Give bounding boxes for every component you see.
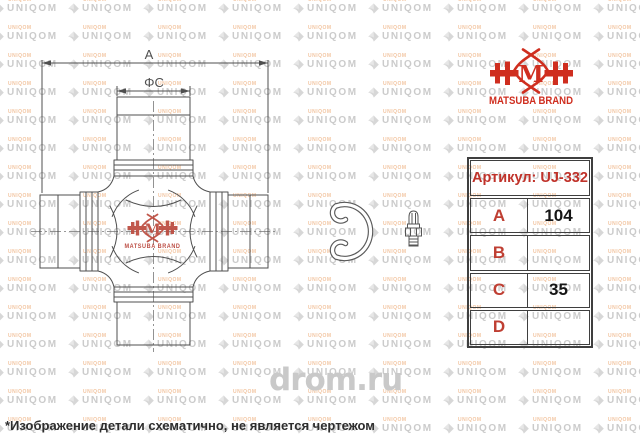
spec-value-a: 104 — [528, 199, 589, 232]
spec-value-b — [528, 236, 589, 269]
snap-ring — [332, 205, 370, 259]
brand-logo-monogram: M — [518, 61, 543, 88]
spec-label-b: B — [471, 236, 528, 269]
spec-value-d — [528, 311, 589, 344]
dimension-a-label: A — [145, 47, 154, 62]
brand-logo-brand-line: MATSUBA BRAND — [489, 95, 573, 107]
table-row: B — [470, 235, 590, 270]
table-row: C 35 — [470, 273, 590, 308]
matsuba-brand-logo: M MATSUBA BRAND — [489, 50, 573, 108]
matsuba-center-logo: M MATSUBA BRAND — [125, 215, 181, 251]
table-row: A 104 — [470, 198, 590, 233]
catalog-image: UNIQOMUNIQOMUNIQOMUNIQOMUNIQOMUNIQOMUNIQ… — [0, 0, 640, 445]
spec-table-header: Артикул: UJ-332 — [470, 160, 590, 196]
center-logo-brand-line: MATSUBA BRAND — [125, 244, 181, 250]
table-row: D — [470, 310, 590, 345]
spec-label-a: A — [471, 199, 528, 232]
center-logo-monogram: M — [144, 221, 161, 239]
spec-value-c: 35 — [528, 274, 589, 307]
footnote: *Изображение детали схематично, не являе… — [5, 418, 375, 433]
dimension-c-label: ΦC — [144, 75, 164, 90]
grease-fitting — [406, 211, 422, 246]
spec-table: Артикул: UJ-332 A 104 B C 35 D — [467, 157, 593, 348]
spec-label-d: D — [471, 311, 528, 344]
drom-watermark: drom.ru — [269, 362, 402, 398]
spec-label-c: C — [471, 274, 528, 307]
